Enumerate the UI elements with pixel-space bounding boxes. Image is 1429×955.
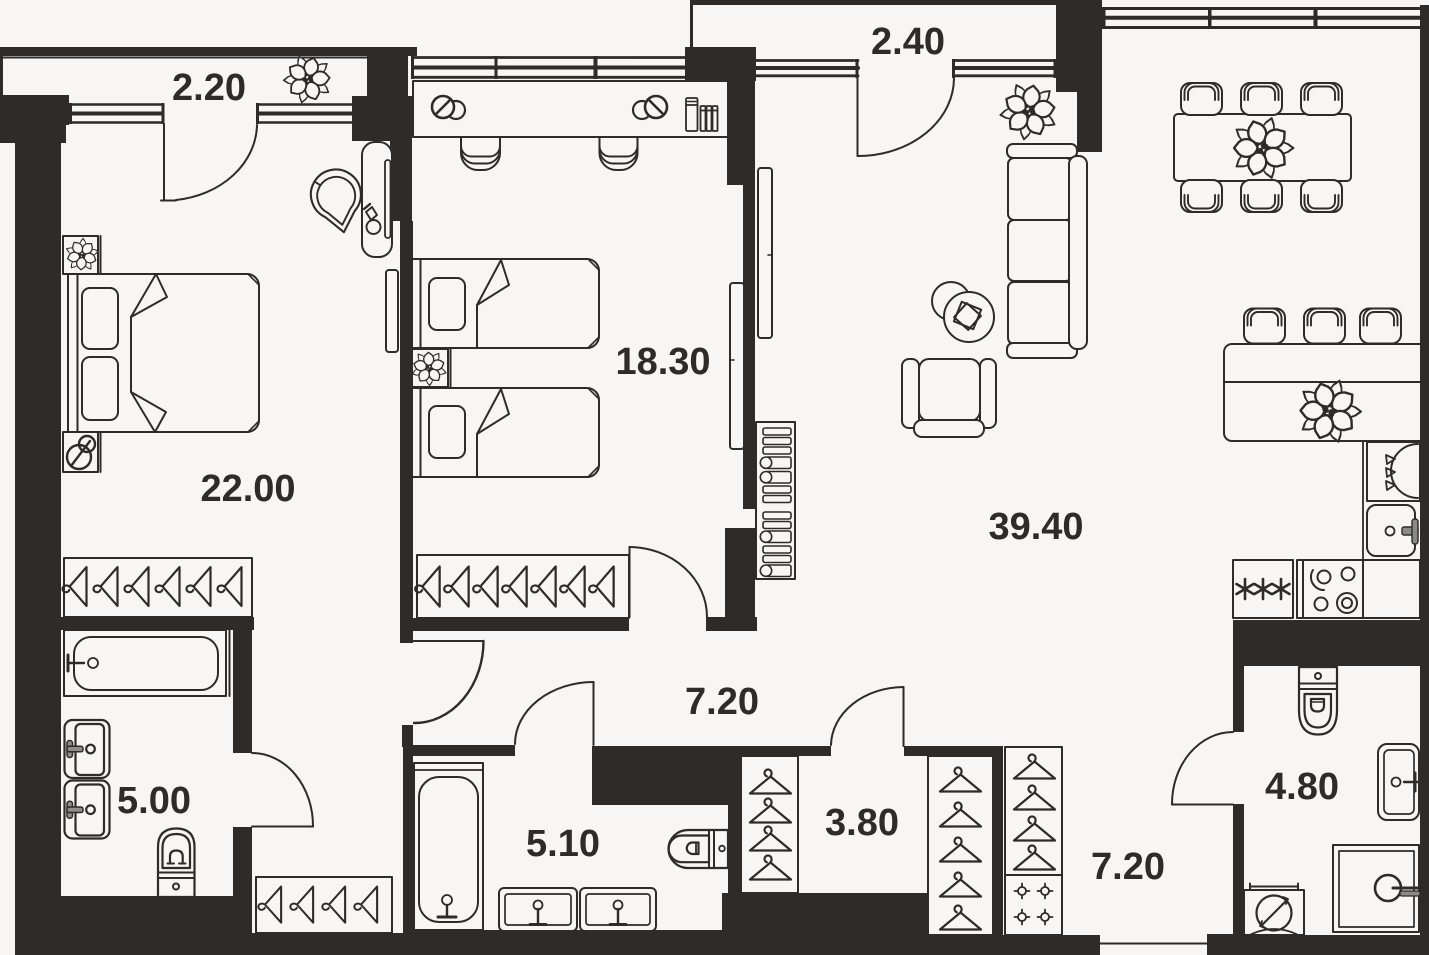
svg-text:7.20: 7.20 xyxy=(1091,846,1165,888)
svg-text:4.80: 4.80 xyxy=(1265,766,1339,808)
svg-text:18.30: 18.30 xyxy=(615,341,710,383)
svg-text:39.40: 39.40 xyxy=(988,506,1083,548)
svg-text:7.20: 7.20 xyxy=(685,681,759,723)
svg-text:3.80: 3.80 xyxy=(825,802,899,844)
svg-text:5.10: 5.10 xyxy=(526,823,600,865)
svg-text:2.20: 2.20 xyxy=(172,67,246,109)
svg-text:2.40: 2.40 xyxy=(871,21,945,63)
svg-text:22.00: 22.00 xyxy=(200,468,295,510)
svg-text:5.00: 5.00 xyxy=(117,780,191,822)
